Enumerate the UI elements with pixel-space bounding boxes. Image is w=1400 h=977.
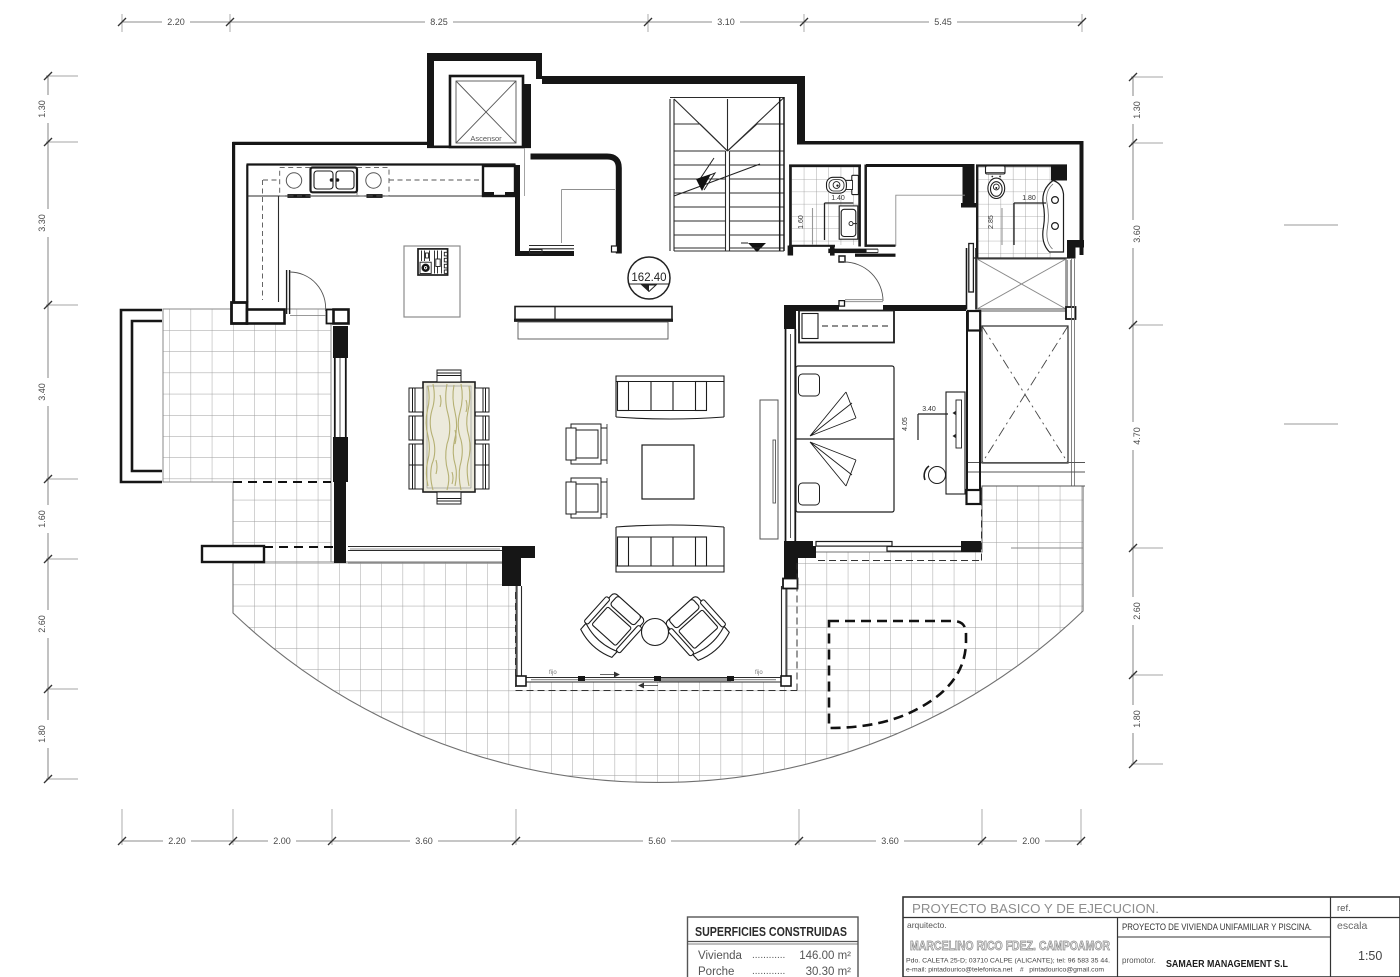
svg-text:3.10: 3.10 xyxy=(717,17,735,27)
svg-text:SAMAER MANAGEMENT S.L: SAMAER MANAGEMENT S.L xyxy=(1166,958,1288,970)
svg-text:3.40: 3.40 xyxy=(37,383,47,401)
svg-text:1.80: 1.80 xyxy=(1022,195,1036,202)
svg-text:1.60: 1.60 xyxy=(798,215,805,229)
svg-text:3.60: 3.60 xyxy=(881,836,899,846)
svg-text:2.85: 2.85 xyxy=(988,215,995,229)
svg-text:2.20: 2.20 xyxy=(168,836,186,846)
svg-text:............: ............ xyxy=(752,950,785,961)
svg-text:3.60: 3.60 xyxy=(1132,225,1142,243)
svg-text:2.00: 2.00 xyxy=(273,836,291,846)
svg-text:1.80: 1.80 xyxy=(37,725,47,743)
svg-text:ref.: ref. xyxy=(1337,903,1351,914)
svg-text:8.25: 8.25 xyxy=(430,17,448,27)
svg-text:escala: escala xyxy=(1337,920,1368,932)
svg-text:4.70: 4.70 xyxy=(1132,427,1142,445)
svg-text:arquitecto.: arquitecto. xyxy=(907,920,947,930)
svg-text:30.30 m²: 30.30 m² xyxy=(806,966,852,977)
svg-text:162.40: 162.40 xyxy=(631,272,666,284)
svg-text:e-mail: pintadourico@telefoni: e-mail: pintadourico@telefonica.net # pi… xyxy=(906,967,1105,974)
svg-text:Ascensor: Ascensor xyxy=(470,134,502,143)
svg-text:1.60: 1.60 xyxy=(37,510,47,528)
svg-text:3.40: 3.40 xyxy=(922,406,936,413)
svg-text:4.05: 4.05 xyxy=(902,417,909,431)
svg-text:1.80: 1.80 xyxy=(1132,710,1142,728)
svg-text:1.30: 1.30 xyxy=(1132,101,1142,119)
svg-text:2.60: 2.60 xyxy=(1132,602,1142,620)
svg-text:146.00 m²: 146.00 m² xyxy=(799,950,851,962)
svg-text:SUPERFICIES CONSTRUIDAS: SUPERFICIES CONSTRUIDAS xyxy=(695,925,847,939)
svg-text:Porche: Porche xyxy=(698,966,734,977)
svg-text:fijo: fijo xyxy=(549,670,557,676)
svg-text:1.30: 1.30 xyxy=(37,100,47,118)
svg-text:fijo: fijo xyxy=(755,670,763,676)
svg-text:PROYECTO DE VIVIENDA UNIFAM: PROYECTO DE VIVIENDA UNIFAMILIAR Y PISCI… xyxy=(1122,922,1312,932)
svg-text:2.20: 2.20 xyxy=(167,17,185,27)
svg-text:5.60: 5.60 xyxy=(648,836,666,846)
svg-text:promotor.: promotor. xyxy=(1122,956,1156,965)
svg-text:2.00: 2.00 xyxy=(1022,836,1040,846)
svg-text:PROYECTO BASICO Y DE EJECU: PROYECTO BASICO Y DE EJECUCION. xyxy=(912,902,1159,916)
svg-text:Vivienda: Vivienda xyxy=(698,950,743,962)
svg-text:3.60: 3.60 xyxy=(415,836,433,846)
svg-text:MARCELINO RICO FDEZ. CAMPOAMOR: MARCELINO RICO FDEZ. CAMPOAMOR xyxy=(910,939,1110,953)
svg-text:Pdo. CALETA 25-D; 03710 CALPE: Pdo. CALETA 25-D; 03710 CALPE (ALICANTE)… xyxy=(906,958,1110,965)
svg-text:3.30: 3.30 xyxy=(37,214,47,232)
svg-text:5.45: 5.45 xyxy=(934,17,952,27)
svg-text:2.60: 2.60 xyxy=(37,615,47,633)
svg-text:............: ............ xyxy=(752,966,785,977)
svg-text:1:50: 1:50 xyxy=(1358,949,1382,963)
svg-text:1.40: 1.40 xyxy=(831,195,845,202)
